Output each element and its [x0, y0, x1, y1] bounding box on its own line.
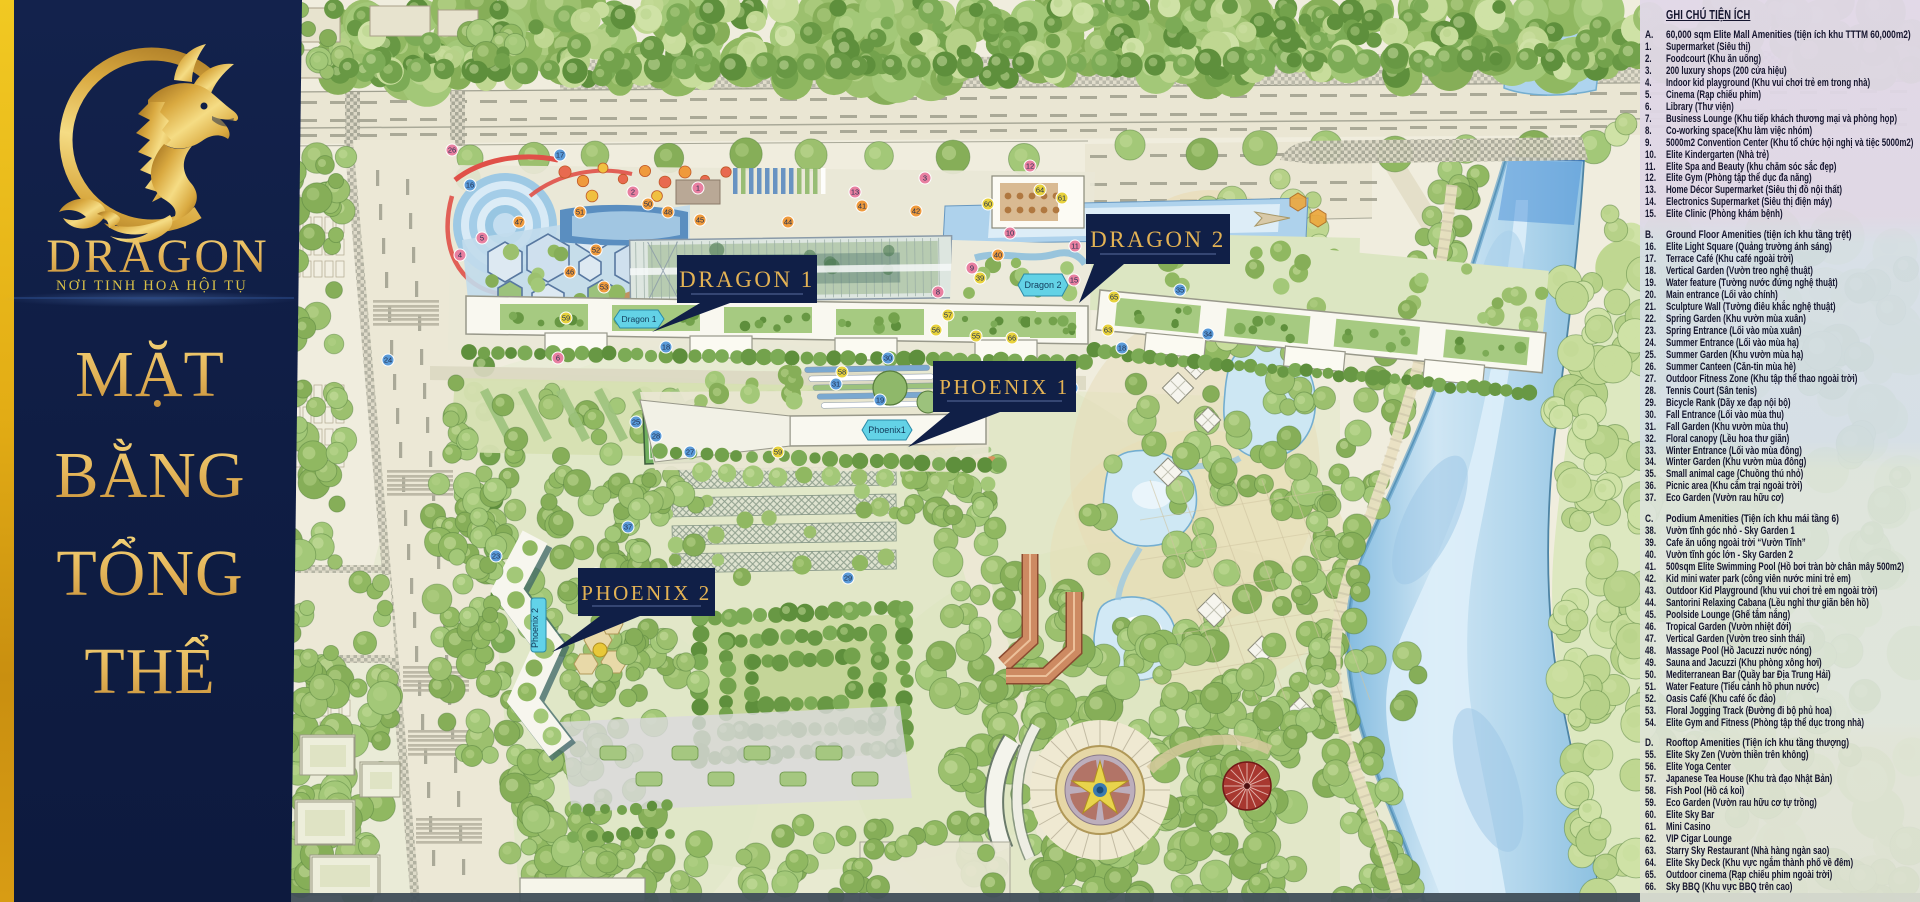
svg-text:53: 53 [600, 283, 608, 292]
svg-text:50: 50 [644, 200, 652, 209]
svg-text:61: 61 [1058, 194, 1066, 203]
svg-text:40: 40 [994, 251, 1002, 260]
svg-text:19: 19 [876, 396, 884, 405]
svg-text:8: 8 [936, 288, 940, 297]
svg-text:BẰNG: BẰNG [54, 438, 245, 512]
svg-text:46: 46 [566, 268, 574, 277]
svg-text:PHOENIX 2: PHOENIX 2 [581, 581, 711, 605]
svg-text:THỂ: THỂ [84, 634, 215, 708]
svg-text:4: 4 [458, 251, 462, 260]
svg-text:64: 64 [1036, 186, 1044, 195]
svg-text:57: 57 [944, 311, 952, 320]
svg-text:59: 59 [562, 314, 570, 323]
svg-text:42: 42 [912, 207, 920, 216]
svg-text:PHOENIX 1: PHOENIX 1 [939, 375, 1069, 399]
svg-text:63: 63 [1104, 326, 1112, 335]
svg-text:45: 45 [696, 216, 704, 225]
svg-text:Dragon 1: Dragon 1 [622, 314, 657, 324]
svg-text:44: 44 [784, 218, 792, 227]
svg-text:Dragon 2: Dragon 2 [1024, 280, 1061, 290]
svg-text:3: 3 [923, 174, 927, 183]
svg-text:66: 66 [1008, 334, 1016, 343]
svg-text:Phoenix1: Phoenix1 [868, 425, 906, 435]
svg-text:2: 2 [631, 188, 635, 197]
svg-text:30: 30 [884, 354, 892, 363]
svg-text:47: 47 [515, 218, 523, 227]
svg-text:1: 1 [696, 184, 700, 193]
svg-text:12: 12 [1026, 162, 1034, 171]
svg-text:11: 11 [1071, 242, 1079, 251]
svg-text:Phoenix 2: Phoenix 2 [530, 608, 540, 648]
svg-text:16: 16 [466, 181, 474, 190]
svg-text:13: 13 [851, 188, 859, 197]
svg-text:59: 59 [774, 448, 782, 457]
svg-text:39: 39 [976, 274, 984, 283]
svg-text:58: 58 [838, 368, 846, 377]
svg-text:55: 55 [972, 332, 980, 341]
svg-text:37: 37 [624, 523, 632, 532]
svg-text:27: 27 [686, 448, 694, 457]
svg-text:17: 17 [556, 151, 564, 160]
svg-text:65: 65 [1110, 293, 1118, 302]
svg-text:MẶT: MẶT [75, 338, 225, 411]
svg-text:56: 56 [932, 326, 940, 335]
svg-text:60: 60 [984, 200, 992, 209]
svg-text:DRAGON: DRAGON [46, 230, 269, 283]
svg-text:18: 18 [1118, 344, 1126, 353]
svg-text:52: 52 [592, 246, 600, 255]
svg-text:15: 15 [1070, 276, 1078, 285]
svg-text:48: 48 [664, 208, 672, 217]
svg-text:29: 29 [844, 574, 852, 583]
svg-text:35: 35 [1176, 286, 1184, 295]
svg-text:DRAGON 2: DRAGON 2 [1090, 227, 1226, 252]
svg-text:10: 10 [1006, 229, 1014, 238]
svg-text:41: 41 [858, 202, 866, 211]
svg-text:34: 34 [1204, 330, 1212, 339]
svg-text:24: 24 [384, 356, 392, 365]
svg-text:31: 31 [832, 380, 840, 389]
svg-text:NƠI TINH HOA HỘI TỤ: NƠI TINH HOA HỘI TỤ [56, 277, 248, 294]
svg-text:51: 51 [576, 208, 584, 217]
svg-text:28: 28 [652, 432, 660, 441]
svg-text:TỔNG: TỔNG [56, 536, 243, 610]
svg-text:26: 26 [448, 146, 456, 155]
svg-text:18: 18 [662, 343, 670, 352]
svg-text:9: 9 [970, 264, 974, 273]
svg-text:25: 25 [632, 418, 640, 427]
svg-text:DRAGON 1: DRAGON 1 [679, 267, 815, 292]
svg-text:6: 6 [556, 354, 560, 363]
svg-text:5: 5 [480, 234, 484, 243]
svg-text:23: 23 [492, 552, 500, 561]
